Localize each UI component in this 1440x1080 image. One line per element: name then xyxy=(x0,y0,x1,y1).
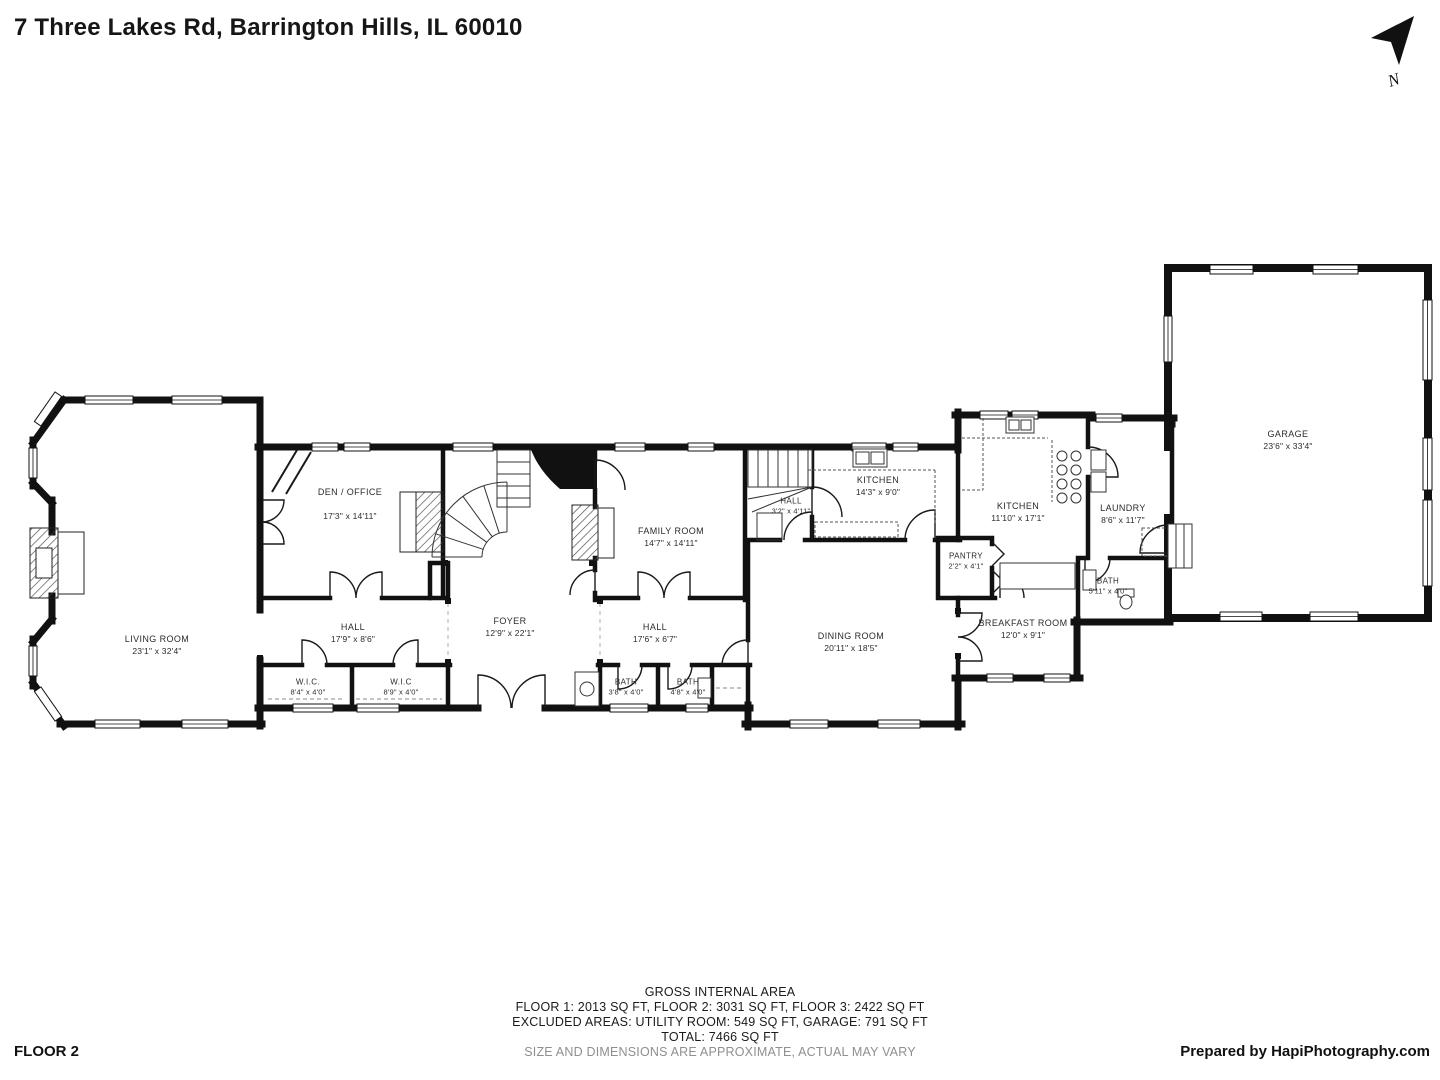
room-label-bath-right: BATH 5'11" x 4'0" xyxy=(1089,577,1128,596)
room-label-hall-right: HALL 17'6" x 6'7" xyxy=(633,622,677,644)
room-label-living-room: LIVING ROOM 23'1" x 32'4" xyxy=(125,634,189,656)
room-label-hall-stairs: HALL 3'2" x 4'11" xyxy=(772,497,811,516)
room-label-pantry: PANTRY 2'2" x 4'1" xyxy=(949,552,984,571)
room-label-den-office: DEN / OFFICE 17'3" x 14'11" xyxy=(318,487,382,521)
room-label-breakfast-room: BREAKFAST ROOM 12'0" x 9'1" xyxy=(979,618,1068,640)
floor-plan-drawing xyxy=(0,0,1440,1080)
room-label-laundry: LAUNDRY 8'6" x 11'7" xyxy=(1100,503,1146,525)
floor-plan-page: 7 Three Lakes Rd, Barrington Hills, IL 6… xyxy=(0,0,1440,1080)
floor-number-label: FLOOR 2 xyxy=(14,1043,79,1060)
room-label-family-room: FAMILY ROOM 14'7" x 14'11" xyxy=(638,526,704,548)
room-label-bath-2: BATH 4'8" x 4'0" xyxy=(671,678,706,697)
windows xyxy=(29,265,1432,728)
back-staircase xyxy=(748,450,812,540)
room-label-hall-left: HALL 17'9" x 8'6" xyxy=(331,622,375,644)
gross-internal-area-line: GROSS INTERNAL AREA xyxy=(0,985,1440,1000)
fixtures xyxy=(575,417,1192,706)
excluded-areas-line: EXCLUDED AREAS: UTILITY ROOM: 549 SQ FT,… xyxy=(0,1015,1440,1030)
room-label-garage: GARAGE 23'6" x 33'4" xyxy=(1263,429,1312,451)
room-label-bath-1: BATH 3'8" x 4'0" xyxy=(609,678,644,697)
room-label-wic-left: W.I.C. 8'4" x 4'0" xyxy=(291,678,326,697)
room-label-foyer: FOYER 12'9" x 22'1" xyxy=(485,616,534,638)
room-label-kitchen-main: KITCHEN 11'10" x 17'1" xyxy=(991,501,1045,523)
kitchen-counters xyxy=(808,418,1168,576)
room-label-dining-room: DINING ROOM 20'11" x 18'5" xyxy=(818,631,884,653)
floor-areas-line: FLOOR 1: 2013 SQ FT, FLOOR 2: 3031 SQ FT… xyxy=(0,1000,1440,1015)
room-label-kitchen-small: KITCHEN 14'3" x 9'0" xyxy=(856,475,900,497)
room-label-wic-right: W.I.C 8'9" x 4'0" xyxy=(384,678,419,697)
photography-credit: Prepared by HapiPhotography.com xyxy=(1180,1043,1430,1060)
